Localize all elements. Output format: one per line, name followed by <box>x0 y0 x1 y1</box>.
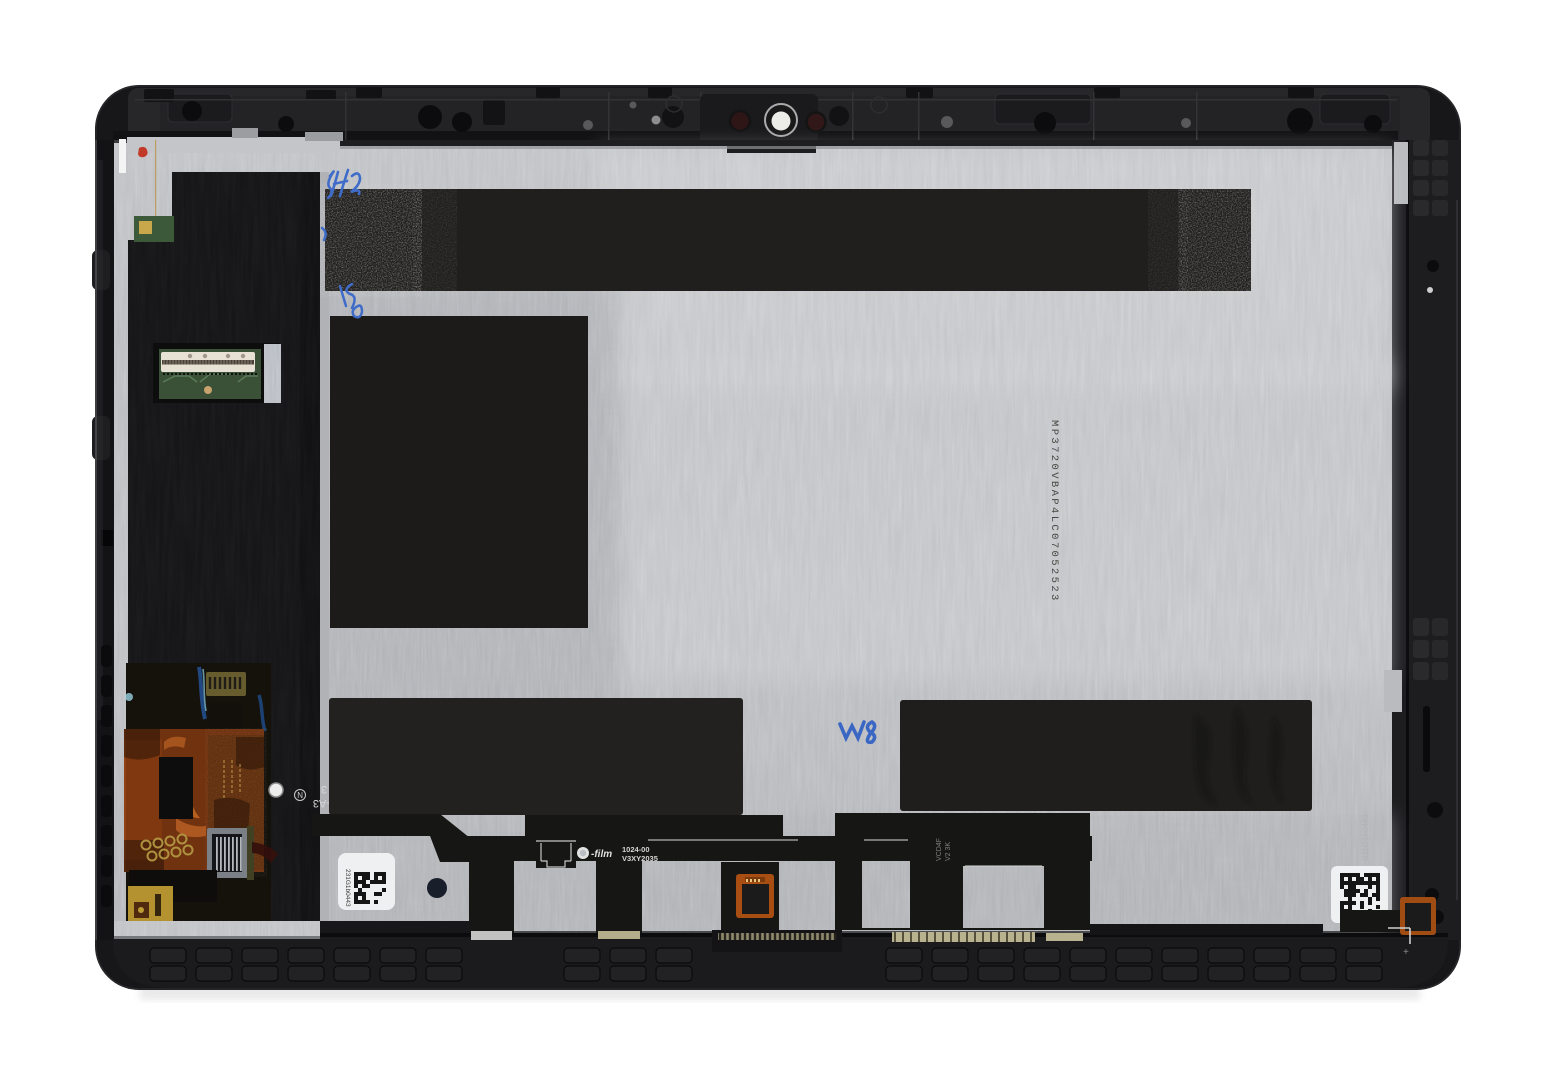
svg-text:VCD4F: VCD4F <box>936 838 943 861</box>
svg-text:-film: -film <box>591 849 612 860</box>
svg-text:3: 3 <box>321 783 327 795</box>
svg-text:N: N <box>297 790 303 799</box>
svg-text:011G1b0443: 011G1b0443 <box>1361 814 1370 860</box>
svg-text:+: + <box>1403 947 1409 958</box>
svg-text:-A3: -A3 <box>313 797 330 809</box>
svg-text:231G1b0443: 231G1b0443 <box>344 869 351 907</box>
svg-text:1024-00: 1024-00 <box>622 845 650 854</box>
svg-text:V3XY2035: V3XY2035 <box>622 854 658 863</box>
svg-text:MP3720VBAP4LC07052523: MP3720VBAP4LC07052523 <box>1048 420 1060 603</box>
svg-text:V2 3K: V2 3K <box>945 842 952 861</box>
